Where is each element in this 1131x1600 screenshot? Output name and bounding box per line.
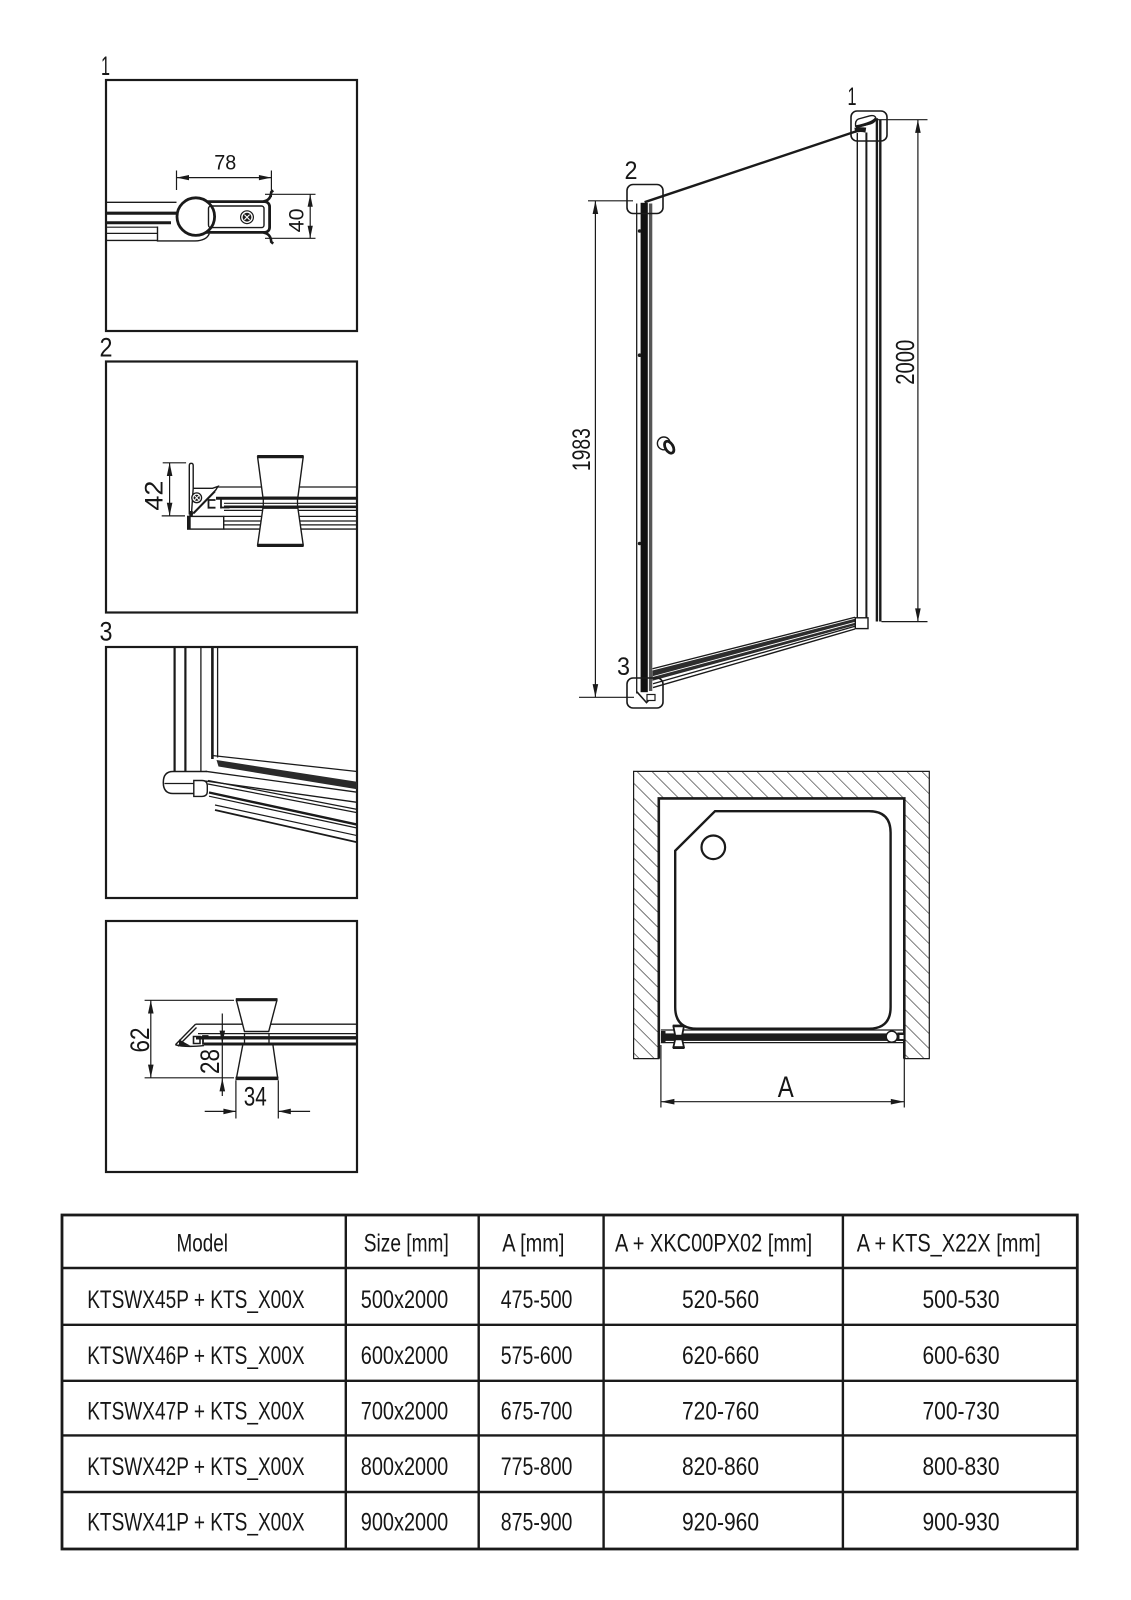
svg-text:1983: 1983 xyxy=(568,428,596,471)
svg-text:KTSWX47P + KTS_X00X: KTSWX47P + KTS_X00X xyxy=(87,1397,305,1425)
svg-text:3: 3 xyxy=(100,617,113,647)
svg-text:2: 2 xyxy=(625,157,638,185)
svg-text:920-960: 920-960 xyxy=(682,1508,759,1536)
svg-text:62: 62 xyxy=(125,1028,155,1053)
svg-text:A [mm]: A [mm] xyxy=(502,1229,564,1257)
svg-text:700-730: 700-730 xyxy=(922,1397,999,1425)
svg-text:42: 42 xyxy=(141,481,169,511)
svg-text:500x2000: 500x2000 xyxy=(361,1286,448,1314)
svg-text:675-700: 675-700 xyxy=(501,1397,573,1425)
svg-text:A + KTS_X22X [mm]: A + KTS_X22X [mm] xyxy=(857,1229,1041,1257)
svg-text:28: 28 xyxy=(195,1049,225,1074)
svg-text:KTSWX46P + KTS_X00X: KTSWX46P + KTS_X00X xyxy=(87,1341,305,1369)
svg-text:34: 34 xyxy=(244,1082,267,1112)
svg-text:700x2000: 700x2000 xyxy=(361,1397,448,1425)
svg-text:620-660: 620-660 xyxy=(682,1341,759,1369)
svg-text:KTSWX45P + KTS_X00X: KTSWX45P + KTS_X00X xyxy=(87,1286,305,1314)
svg-text:900-930: 900-930 xyxy=(922,1508,999,1536)
svg-text:600-630: 600-630 xyxy=(922,1341,999,1369)
svg-text:600x2000: 600x2000 xyxy=(361,1342,448,1370)
svg-text:KTSWX42P + KTS_X00X: KTSWX42P + KTS_X00X xyxy=(87,1452,305,1480)
svg-text:820-860: 820-860 xyxy=(682,1452,759,1480)
svg-text:2000: 2000 xyxy=(892,340,920,385)
svg-text:775-800: 775-800 xyxy=(501,1453,573,1481)
svg-text:2: 2 xyxy=(100,333,113,363)
svg-text:1: 1 xyxy=(848,83,857,111)
svg-text:1: 1 xyxy=(101,51,110,81)
svg-text:800x2000: 800x2000 xyxy=(361,1453,448,1481)
svg-text:A: A xyxy=(778,1071,794,1104)
svg-text:520-560: 520-560 xyxy=(682,1285,759,1313)
svg-text:575-600: 575-600 xyxy=(501,1342,573,1370)
svg-text:720-760: 720-760 xyxy=(682,1397,759,1425)
svg-text:875-900: 875-900 xyxy=(501,1508,573,1536)
svg-text:500-530: 500-530 xyxy=(922,1285,999,1313)
svg-text:A + XKC00PX02 [mm]: A + XKC00PX02 [mm] xyxy=(615,1229,812,1257)
svg-text:40: 40 xyxy=(286,208,309,232)
svg-text:800-830: 800-830 xyxy=(922,1452,999,1480)
svg-text:475-500: 475-500 xyxy=(501,1286,573,1314)
svg-text:KTSWX41P + KTS_X00X: KTSWX41P + KTS_X00X xyxy=(87,1508,305,1536)
svg-text:Size [mm]: Size [mm] xyxy=(364,1229,449,1257)
svg-text:3: 3 xyxy=(617,653,630,681)
svg-text:900x2000: 900x2000 xyxy=(361,1508,448,1536)
svg-text:Model: Model xyxy=(177,1229,228,1257)
svg-text:78: 78 xyxy=(214,152,236,175)
